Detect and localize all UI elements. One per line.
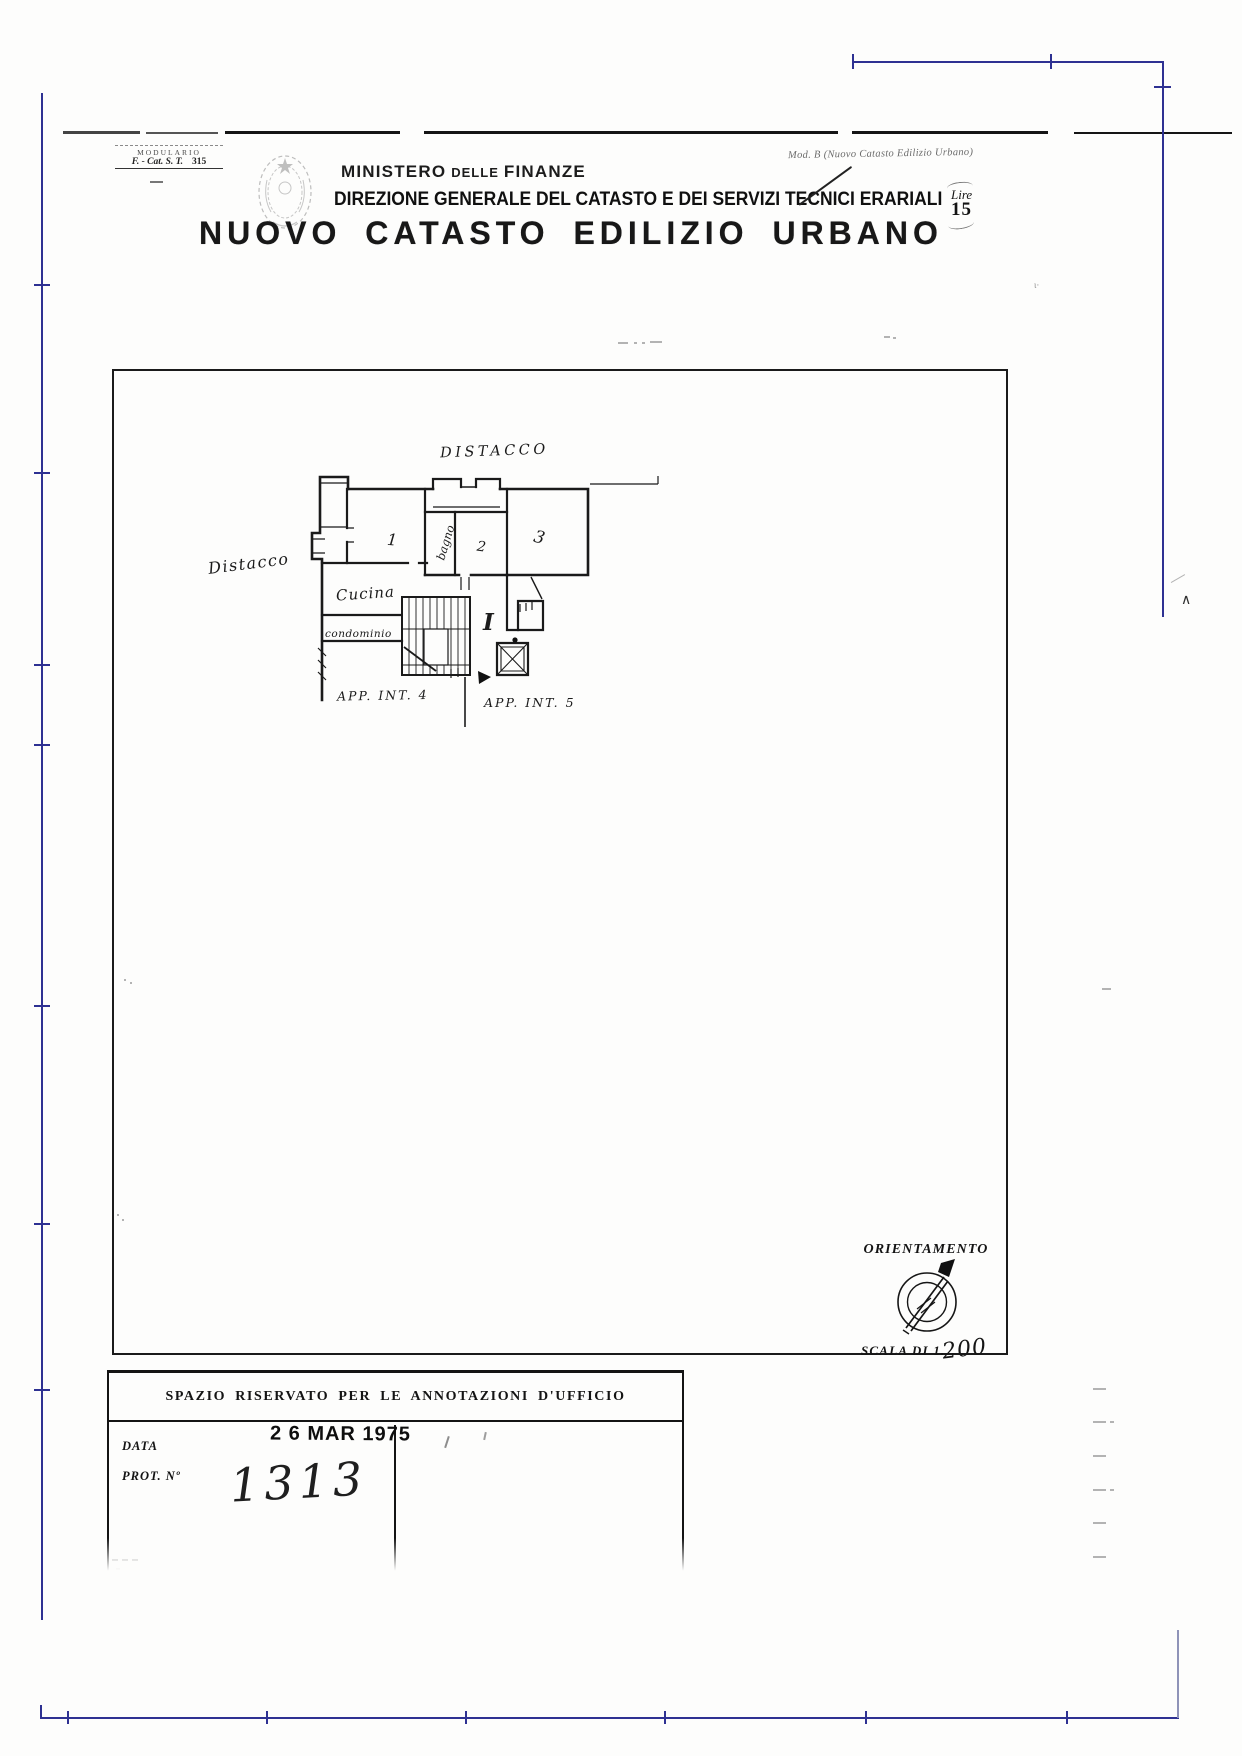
ministry-word: FINANZE [504,162,586,181]
door-swing [531,577,542,599]
registration-line-top-right [853,61,1163,63]
category-text: F. - Cat. S. T. [132,157,183,167]
plan-label-distacco-left: Distacco [206,549,290,578]
registration-tick [852,54,854,69]
plan-floor-numeral: I [482,609,495,636]
scan-artifact [1110,1489,1114,1491]
scan-artifact [1093,1388,1106,1390]
top-rule-segment [225,131,400,134]
plan-label-app-int-5: APP. INT. 5 [483,695,576,710]
ministry-line: MINISTERODELLEFINANZE [341,162,586,182]
registration-line-left [41,93,43,1620]
office-box-header: SPAZIO RISERVATO PER LE ANNOTAZIONI D'UF… [109,1373,682,1422]
stamp-underscore [150,181,163,183]
reference-dot [512,637,517,642]
ministry-word: MINISTERO [341,162,446,181]
registration-tick [465,1711,467,1724]
plan-label-distacco-top: DISTACCO [439,442,549,462]
registration-line-bottom-right [1177,1630,1179,1718]
floor-plan-svg: DISTACCO Distacco Cucina condominio bagn… [195,425,675,735]
top-rule-segment [852,131,1048,134]
scan-artifact [122,1219,124,1221]
scan-artifact [884,336,890,338]
plan-room-number-2: 2 [475,539,487,556]
top-rule-segment [63,131,140,134]
registration-tick [1066,1711,1068,1724]
scan-artifact [1093,1455,1106,1457]
top-rule-segment [1074,132,1232,134]
scan-artifact [1093,1522,1106,1524]
category-number: 315 [192,157,206,167]
scale-note: SCALA DI 1.200 [861,1336,987,1361]
scale-value-handwritten: 200 [941,1334,989,1364]
registration-tick [40,1705,42,1718]
scan-artifact [642,342,645,344]
scan-artifact [117,1214,119,1216]
page-title: NUOVO CATASTO EDILIZIO URBANO [199,215,943,252]
stair-landing [424,629,448,665]
scan-fade [100,1538,692,1580]
scanned-cadastral-document: MODULARIO F. - Cat. S. T.315 MINISTERODE… [0,0,1242,1756]
modulario-category: F. - Cat. S. T.315 [115,157,223,169]
scan-artifact: ι· [1034,280,1039,290]
plan-label-bagno: bagno [433,523,457,562]
registration-tick [34,744,50,746]
scan-artifact [1102,988,1111,990]
scan-artifact [1110,1421,1114,1423]
prot-label: PROT. Nº [122,1469,181,1484]
registration-tick [67,1711,69,1724]
registration-line-right [1162,61,1164,617]
registration-tick [664,1711,666,1724]
scan-artifact [618,342,628,344]
ministry-word: DELLE [446,165,504,180]
scan-artifact [1093,1556,1106,1558]
scan-artifact [634,342,637,344]
plan-label-condominio: condominio [325,628,392,640]
registration-tick [1154,86,1171,88]
plan-thin-lines [312,476,658,680]
top-rule-segment [424,131,838,134]
direction-line: DIREZIONE GENERALE DEL CATASTO E DEI SER… [334,189,942,211]
fee-amount: 15 [951,200,972,219]
prot-number-handwritten: 1313 [229,1451,369,1512]
scan-artifact [124,979,126,981]
scan-artifact [893,337,896,339]
registration-tick [34,1389,50,1391]
plan-label-app-int-4: APP. INT. 4 [336,687,429,704]
registration-tick [266,1711,268,1724]
scan-artifact [650,341,662,343]
caret-mark: ∧ [1181,592,1191,608]
mod-note: Mod. B (Nuovo Catasto Edilizio Urbano) [788,146,1028,161]
plan-room-number-3: 3 [532,527,547,549]
scan-artifact [1093,1489,1106,1491]
modulario-label: MODULARIO [115,148,223,157]
plan-room-number-1: 1 [386,530,398,550]
date-stamp: 2 6 MAR 1975 [270,1423,411,1447]
registration-tick [34,284,50,286]
date-label: DATA [122,1439,158,1454]
fee-block: Lire 15 [951,188,972,219]
registration-tick [34,664,50,666]
scan-artifact [130,982,132,984]
registration-line-bottom [40,1717,1179,1719]
top-rule-segment [146,132,218,134]
registration-tick [865,1711,867,1724]
registration-tick [1050,54,1052,69]
modulario-stamp: MODULARIO F. - Cat. S. T.315 [115,145,223,169]
scan-artifact [1171,574,1185,583]
registration-tick [34,472,50,474]
plan-label-cucina: Cucina [335,583,395,605]
scale-prefix: SCALA DI 1. [861,1343,945,1358]
scan-artifact [1093,1421,1106,1423]
registration-tick [34,1223,50,1225]
registration-tick [34,1005,50,1007]
section-arrow [478,671,491,684]
